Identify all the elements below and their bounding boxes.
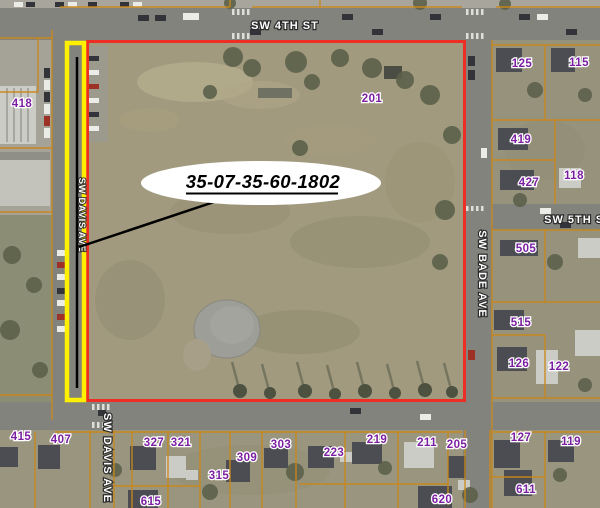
- parcel-number-407: 407: [51, 434, 71, 446]
- street-label-sw-davis-ave: SW DAVIS AVE: [101, 413, 113, 503]
- parcel-number-309: 309: [237, 452, 257, 464]
- parcel-number-611: 611: [516, 484, 536, 496]
- park-structure: [258, 88, 292, 98]
- parcel-number-427: 427: [519, 177, 539, 189]
- street-bottom: [0, 402, 600, 430]
- street-label-sw-5th-st: SW 5TH ST: [544, 214, 600, 226]
- parcel-number-615: 615: [141, 496, 162, 508]
- street-label-sw-4th-st: SW 4TH ST: [251, 20, 319, 32]
- parcel-number-223: 223: [324, 447, 344, 459]
- parcel-number-620: 620: [432, 494, 452, 506]
- street-label-sw-bade-ave: SW BADE AVE: [476, 230, 488, 317]
- parcel-number-419: 419: [511, 134, 531, 146]
- parcel-number-211: 211: [417, 437, 437, 449]
- parcel-number-505: 505: [516, 243, 537, 255]
- street-label-sw-davis-ave-north: SW DAVIS AVE: [76, 178, 87, 253]
- parcel-number-303: 303: [271, 439, 291, 451]
- aerial-parcel-map[interactable]: SW 4TH ST SW 5TH ST SW BADE AVE SW DAVIS…: [0, 0, 600, 508]
- parcel-number-119: 119: [561, 436, 581, 448]
- parcel-number-418: 418: [12, 98, 33, 110]
- parcel-number-515: 515: [511, 317, 532, 329]
- parcel-number-125: 125: [512, 58, 533, 70]
- parcel-id-callout: 35-07-35-60-1802: [141, 161, 381, 205]
- parcel-number-118: 118: [564, 170, 584, 182]
- parcel-number-126: 126: [509, 358, 529, 370]
- parcel-number-205: 205: [447, 439, 468, 451]
- parcel-number-321: 321: [171, 437, 192, 449]
- parcel-number-127: 127: [511, 432, 531, 444]
- parcel-number-201: 201: [362, 93, 383, 105]
- parcel-number-327: 327: [144, 437, 164, 449]
- parcel-number-415: 415: [11, 431, 32, 443]
- parcel-number-115: 115: [569, 57, 589, 69]
- parcel-number-315: 315: [209, 470, 230, 482]
- parcel-number-219: 219: [367, 434, 387, 446]
- parcel-id-text: 35-07-35-60-1802: [186, 171, 341, 192]
- parcel-number-122: 122: [549, 361, 569, 373]
